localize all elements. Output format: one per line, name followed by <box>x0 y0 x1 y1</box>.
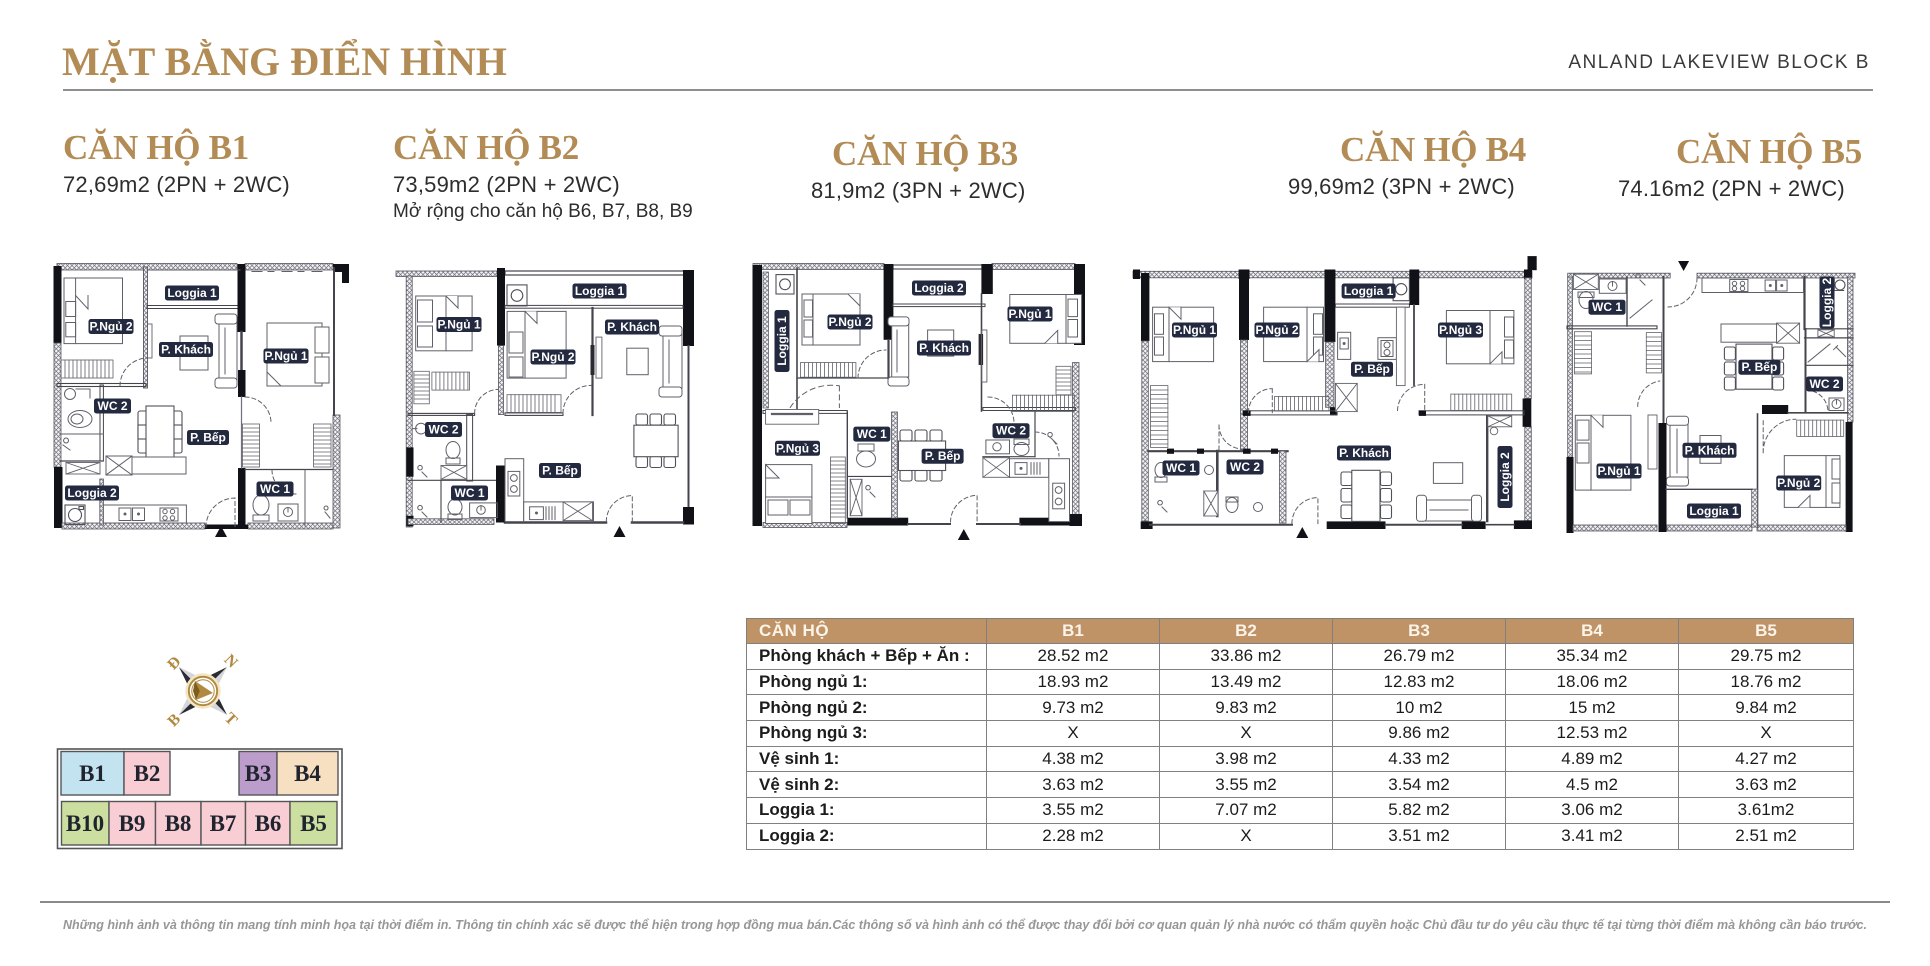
svg-text:P.Ngủ 2: P.Ngủ 2 <box>531 350 574 364</box>
svg-text:WC 1: WC 1 <box>260 482 290 496</box>
svg-text:Loggia 1: Loggia 1 <box>167 286 217 300</box>
svg-text:P. Khách: P. Khách <box>919 341 969 355</box>
svg-text:P. Bếp: P. Bếp <box>925 449 961 463</box>
svg-text:P.Ngủ 2: P.Ngủ 2 <box>1255 323 1298 337</box>
svg-text:WC 1: WC 1 <box>857 427 887 441</box>
svg-text:P.Ngủ 1: P.Ngủ 1 <box>1008 307 1051 321</box>
svg-text:P. Bếp: P. Bếp <box>190 431 226 445</box>
svg-text:Loggia 1: Loggia 1 <box>575 284 625 298</box>
svg-text:P. Khách: P. Khách <box>161 343 211 357</box>
svg-text:B1: B1 <box>79 761 106 786</box>
svg-text:B6: B6 <box>255 811 282 836</box>
svg-text:WC 1: WC 1 <box>1166 461 1196 475</box>
svg-text:P.Ngủ 1: P.Ngủ 1 <box>1597 464 1640 478</box>
svg-text:P.Ngủ 3: P.Ngủ 3 <box>776 441 819 455</box>
svg-text:Loggia 2: Loggia 2 <box>1498 452 1512 502</box>
svg-text:Loggia 2: Loggia 2 <box>914 281 964 295</box>
svg-text:WC 2: WC 2 <box>98 399 128 413</box>
svg-text:P. Bếp: P. Bếp <box>542 464 578 478</box>
svg-text:P.Ngủ 1: P.Ngủ 1 <box>1173 323 1216 337</box>
svg-text:P.Ngủ 3: P.Ngủ 3 <box>1439 323 1482 337</box>
svg-text:P.Ngủ 1: P.Ngủ 1 <box>264 349 307 363</box>
svg-text:P.Ngủ 2: P.Ngủ 2 <box>828 315 871 329</box>
svg-text:WC 2: WC 2 <box>996 424 1026 438</box>
svg-text:B10: B10 <box>66 811 104 836</box>
svg-text:WC 1: WC 1 <box>1592 300 1622 314</box>
svg-text:P. Khách: P. Khách <box>1685 443 1735 457</box>
svg-text:B8: B8 <box>165 811 192 836</box>
svg-text:B4: B4 <box>294 761 321 786</box>
svg-text:P.Ngủ 2: P.Ngủ 2 <box>89 320 132 334</box>
svg-text:Loggia 1: Loggia 1 <box>1689 504 1739 518</box>
svg-text:WC 2: WC 2 <box>429 423 459 437</box>
svg-text:Loggia 1: Loggia 1 <box>775 316 789 366</box>
svg-text:B9: B9 <box>119 811 146 836</box>
svg-text:P. Bếp: P. Bếp <box>1354 362 1390 376</box>
svg-text:WC 2: WC 2 <box>1810 377 1840 391</box>
svg-text:P. Khách: P. Khách <box>1339 446 1389 460</box>
svg-text:B2: B2 <box>134 761 161 786</box>
svg-text:P.Ngủ 1: P.Ngủ 1 <box>437 318 480 332</box>
svg-text:P.Ngủ 2: P.Ngủ 2 <box>1777 476 1820 490</box>
svg-text:P. Khách: P. Khách <box>607 320 657 334</box>
svg-text:Loggia 2: Loggia 2 <box>67 486 117 500</box>
svg-text:Loggia 1: Loggia 1 <box>1344 284 1394 298</box>
svg-text:B3: B3 <box>245 761 272 786</box>
svg-text:P. Bếp: P. Bếp <box>1742 360 1778 374</box>
svg-text:Loggia 2: Loggia 2 <box>1820 278 1834 328</box>
svg-text:WC 1: WC 1 <box>455 486 485 500</box>
svg-text:B7: B7 <box>210 811 237 836</box>
svg-text:WC 2: WC 2 <box>1230 460 1260 474</box>
svg-text:B5: B5 <box>300 811 327 836</box>
